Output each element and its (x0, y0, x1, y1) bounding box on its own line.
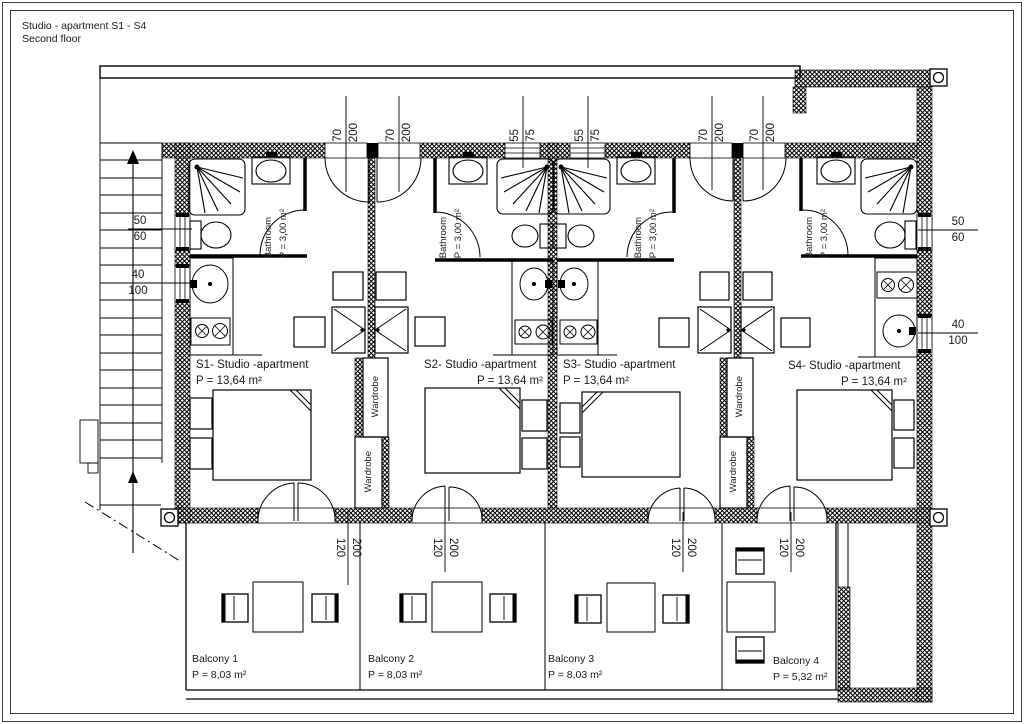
balcony-3-label: Balcony 3 (548, 653, 594, 665)
dimension-balcony-door-3: 120200 (661, 538, 705, 580)
apartment-s4-area: P = 13,64 m² (841, 376, 907, 388)
dimension-door-s4: 70200 (741, 96, 785, 142)
bathroom-s2-label: Bathroom P = 3,00 m² (437, 192, 466, 258)
balcony-3-area: P = 8,03 m² (548, 669, 602, 681)
dimension-door-s3: 70200 (690, 96, 734, 142)
bathroom-s4-label: Bathroom P = 3,00 m² (803, 180, 832, 258)
bathroom-area: P = 3,00 m² (818, 209, 832, 258)
balcony-2-area: P = 8,03 m² (368, 669, 422, 681)
drawing-title: Studio - apartment S1 - S4 (22, 20, 146, 33)
dimension-window-s3: 5575 (566, 96, 610, 142)
drawing-subtitle: Second floor (22, 33, 81, 46)
bathroom-name: Bathroom (803, 217, 817, 258)
bathroom-name: Bathroom (632, 217, 646, 258)
apartment-s4-label: S4- Studio -apartment (788, 360, 901, 372)
apartment-s1-area: P = 13,64 m² (196, 375, 262, 387)
balcony-4-area: P = 5,32 m² (773, 671, 827, 683)
balcony-1-label: Balcony 1 (192, 653, 238, 665)
dimension-balcony-door-4: 120200 (769, 538, 813, 580)
wardrobe-label-2: Wardrobe (353, 435, 383, 509)
bathroom-s3-label: Bathroom P = 3,00 m² (632, 192, 661, 258)
dimension-window-left-1: 5060 (120, 213, 160, 245)
balcony-2-label: Balcony 2 (368, 653, 414, 665)
wardrobe-label-1: Wardrobe (361, 356, 390, 438)
apartment-s3-area: P = 13,64 m² (563, 375, 629, 387)
balcony-1-area: P = 8,03 m² (192, 669, 246, 681)
bathroom-name: Bathroom (262, 217, 276, 258)
floor-plan-page: Studio - apartment S1 - S4 Second floor … (0, 0, 1024, 724)
dimension-window-right-1: 5060 (938, 214, 978, 246)
balconies (186, 523, 848, 699)
dimension-balcony-door-2: 120200 (423, 538, 467, 580)
dimension-window-s2: 5575 (501, 96, 545, 142)
bathroom-area: P = 3,00 m² (647, 209, 661, 258)
bathroom-area: P = 3,00 m² (277, 209, 291, 258)
bathroom-name: Bathroom (437, 217, 451, 258)
wardrobe-label-3: Wardrobe (725, 356, 754, 438)
dimension-door-s2: 70200 (377, 96, 421, 142)
dimension-balcony-door-1: 120200 (326, 538, 370, 580)
dimension-window-right-2: 40100 (938, 317, 978, 349)
apartment-s2-label: S2- Studio -apartment (424, 359, 537, 371)
dimension-door-s1: 70200 (324, 96, 368, 142)
bathroom-s1-label: Bathroom P = 3,00 m² (262, 180, 291, 258)
apartment-s2-area: P = 13,64 m² (477, 375, 543, 387)
dimension-window-left-2: 40100 (118, 267, 158, 299)
balcony-4-label: Balcony 4 (773, 655, 819, 667)
apartment-s3-label: S3- Studio -apartment (563, 359, 676, 371)
wardrobe-label-4: Wardrobe (718, 435, 748, 509)
bathroom-area: P = 3,00 m² (452, 209, 466, 258)
apartment-s1-label: S1- Studio -apartment (196, 359, 309, 371)
kitchen-fixtures (190, 258, 917, 357)
